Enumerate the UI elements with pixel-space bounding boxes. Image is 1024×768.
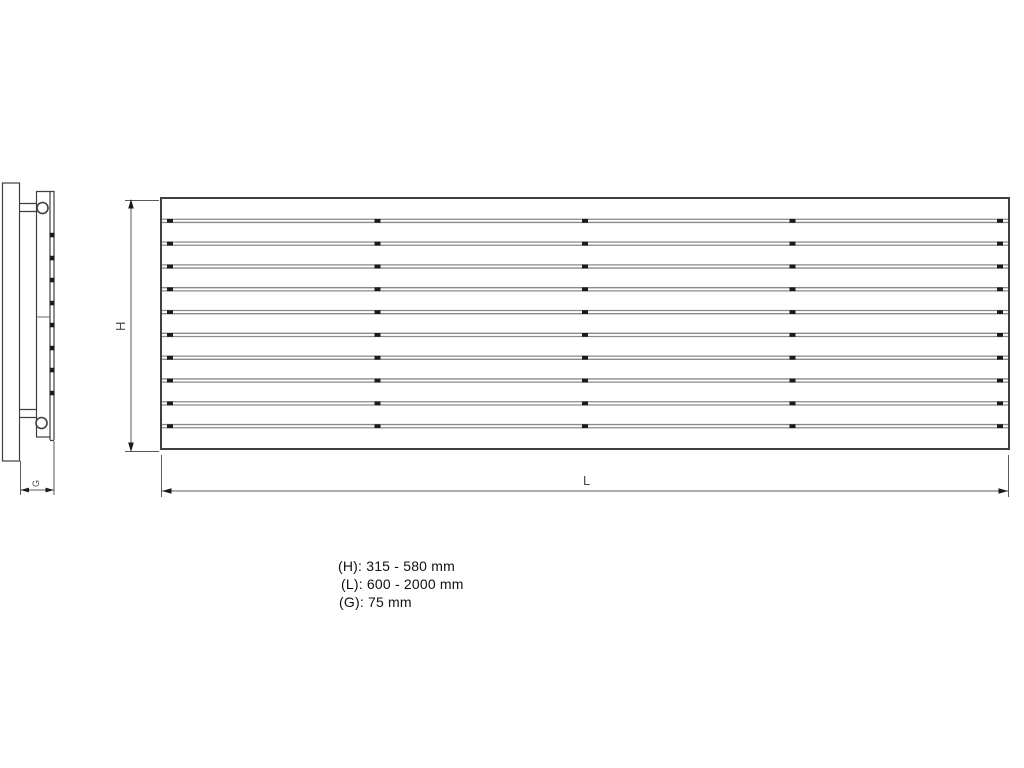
side-view xyxy=(3,183,55,461)
spec-depth: (G): 75 mm xyxy=(338,593,464,611)
h-dimension-label: H xyxy=(113,322,128,331)
weld-tick xyxy=(167,310,173,314)
g-arrow-left xyxy=(21,488,30,493)
weld-tick xyxy=(375,265,381,269)
wall-section xyxy=(3,183,20,461)
weld-tick xyxy=(582,242,588,246)
l-arrow-right xyxy=(999,488,1009,494)
weld-tick xyxy=(375,424,381,428)
front-view-outline xyxy=(161,198,1009,449)
weld-tick xyxy=(790,310,796,314)
weld-tick xyxy=(997,333,1003,337)
slat-tab xyxy=(50,368,55,373)
weld-tick xyxy=(997,424,1003,428)
weld-tick xyxy=(997,310,1003,314)
weld-tick xyxy=(582,219,588,223)
weld-tick xyxy=(997,287,1003,291)
g-arrow-right xyxy=(46,488,55,493)
weld-tick xyxy=(167,356,173,360)
g-dimension-label: G xyxy=(31,480,41,487)
weld-tick xyxy=(582,401,588,405)
weld-tick xyxy=(790,242,796,246)
weld-tick xyxy=(790,401,796,405)
panel-profile xyxy=(36,191,54,441)
slat-tab xyxy=(50,323,55,328)
slat-tab xyxy=(50,233,55,238)
weld-tick xyxy=(790,356,796,360)
slat-tab xyxy=(50,346,55,351)
weld-tick xyxy=(582,379,588,383)
weld-tick xyxy=(167,401,173,405)
dimension-specs: (H): 315 - 580 mm (L): 600 - 2000 mm (G)… xyxy=(338,557,464,611)
l-dimension-label: L xyxy=(583,473,590,488)
drawing-svg: G H L xyxy=(0,0,1024,768)
weld-tick xyxy=(167,333,173,337)
h-dimension: H xyxy=(113,199,159,452)
bottom-bracket xyxy=(20,410,38,418)
weld-tick xyxy=(375,333,381,337)
weld-tick xyxy=(790,287,796,291)
top-pipe-connection xyxy=(37,203,48,214)
weld-tick xyxy=(997,356,1003,360)
weld-tick xyxy=(790,379,796,383)
weld-tick xyxy=(997,379,1003,383)
bottom-pipe-connection xyxy=(36,418,47,429)
weld-tick xyxy=(375,219,381,223)
weld-tick xyxy=(167,265,173,269)
h-arrow-bottom xyxy=(128,443,134,453)
weld-tick xyxy=(790,424,796,428)
weld-tick xyxy=(582,310,588,314)
weld-tick xyxy=(582,356,588,360)
spec-height-range: (H): 315 - 580 mm xyxy=(338,557,464,575)
weld-tick xyxy=(582,333,588,337)
weld-tick xyxy=(997,265,1003,269)
slat-tab xyxy=(50,278,55,283)
top-bracket xyxy=(20,204,38,212)
weld-tick xyxy=(582,424,588,428)
weld-tick xyxy=(375,310,381,314)
weld-tick xyxy=(375,379,381,383)
weld-tick xyxy=(997,401,1003,405)
weld-tick xyxy=(167,287,173,291)
weld-tick xyxy=(167,242,173,246)
weld-tick xyxy=(582,265,588,269)
spec-length-range: (L): 600 - 2000 mm xyxy=(338,575,464,593)
l-dimension: L xyxy=(162,455,1009,497)
slat-tab xyxy=(50,256,55,260)
weld-tick xyxy=(375,356,381,360)
radiator-dimension-drawing: G H L (H): 315 - 580 mm ( xyxy=(0,0,1024,768)
weld-tick xyxy=(997,219,1003,223)
weld-tick xyxy=(167,379,173,383)
weld-tick xyxy=(790,265,796,269)
weld-tick xyxy=(375,242,381,246)
weld-tick xyxy=(790,333,796,337)
slat-tab xyxy=(50,391,55,396)
weld-tick xyxy=(582,287,588,291)
weld-tick xyxy=(167,424,173,428)
weld-tick xyxy=(375,287,381,291)
weld-tick xyxy=(167,219,173,223)
weld-tick xyxy=(790,219,796,223)
g-dimension: G xyxy=(21,441,55,495)
front-view xyxy=(161,198,1009,449)
weld-tick xyxy=(997,242,1003,246)
weld-tick xyxy=(375,401,381,405)
l-arrow-left xyxy=(162,488,172,494)
slat-tab xyxy=(50,301,55,306)
